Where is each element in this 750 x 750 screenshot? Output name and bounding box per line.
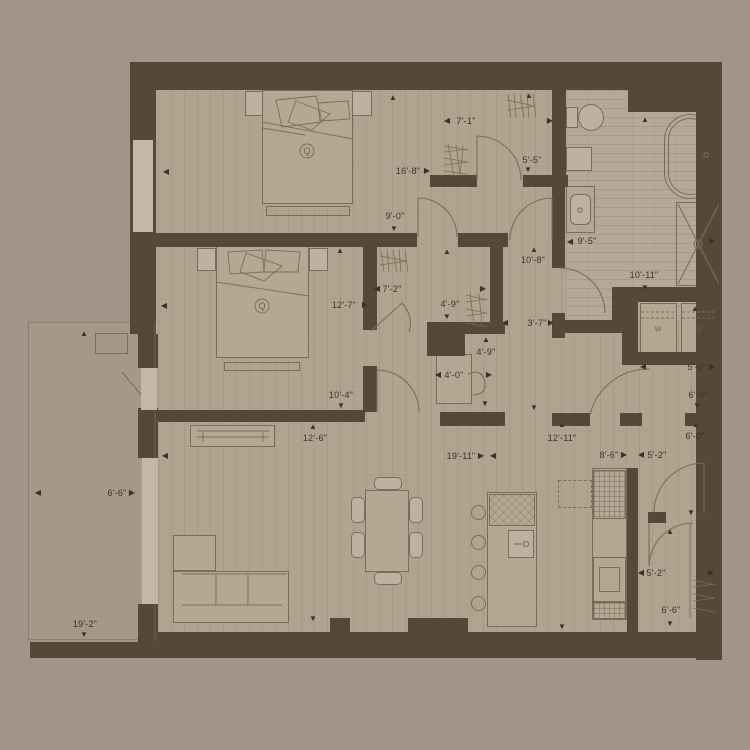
dimension-arrow-right: ▶: [424, 167, 430, 175]
bed2-size-label: Q: [258, 301, 265, 311]
dimension-label: 3'-7": [528, 318, 547, 328]
dimension-label: 12'-11": [548, 433, 577, 443]
dimension-arrow-right: ▶: [486, 371, 492, 379]
dimension-arrow-down: ▼: [693, 402, 701, 410]
dimension-arrow-up: ▲: [692, 421, 700, 429]
dimension-arrow-left: ◀: [35, 489, 41, 497]
dimension-label: 12'-6": [303, 433, 327, 443]
sofa-details: [182, 431, 287, 605]
fixture-details: [514, 153, 708, 547]
dimension-label: 10'-4": [329, 390, 353, 400]
dimension-arrow-down: ▼: [443, 313, 451, 321]
dimension-label: 5'-5": [523, 155, 542, 165]
dimension-label: 19'-11": [447, 451, 476, 461]
dimension-arrow-down: ▼: [641, 284, 649, 292]
dimension-arrow-right: ▶: [362, 301, 368, 309]
dimension-label: 16'-8": [396, 166, 420, 176]
dimension-label: 9'-5": [578, 236, 597, 246]
dimension-arrow-left: ◀: [163, 168, 169, 176]
dimension-label: 19'-2": [73, 619, 97, 629]
dimension-arrow-right: ▶: [548, 319, 554, 327]
balcony-door-opening: [141, 368, 157, 410]
dimension-label: 4'-9": [441, 299, 460, 309]
dimension-arrow-left: ◀: [435, 371, 441, 379]
dimension-arrow-up: ▲: [525, 92, 533, 100]
dimension-arrow-up: ▲: [482, 336, 490, 344]
dimension-label: 10'-8": [521, 255, 545, 265]
dimension-arrow-left: ◀: [162, 452, 168, 460]
dimension-label: 5'-2": [648, 450, 667, 460]
dimension-arrow-down: ▼: [666, 620, 674, 628]
floor-plan: Q Q W D 7'-1"◀▶5'-5"▲▼16'-8"◀▶9'-0"▲▼9'-…: [0, 0, 750, 750]
dimension-arrow-down: ▼: [687, 509, 695, 517]
dimension-arrow-up: ▲: [691, 305, 699, 313]
dimension-arrow-left: ◀: [490, 452, 496, 460]
plan-detail-overlay: [0, 0, 750, 750]
bed1-size-label: Q: [303, 146, 310, 156]
dimension-arrow-left: ◀: [444, 117, 450, 125]
dimension-arrow-up: ▲: [389, 94, 397, 102]
dimension-arrow-up: ▲: [336, 247, 344, 255]
dimension-arrow-down: ▼: [481, 400, 489, 408]
washer-label: W: [655, 327, 662, 334]
dimension-arrow-right: ▶: [478, 452, 484, 460]
dimension-arrow-left: ◀: [638, 451, 644, 459]
dimension-label: 7'-2": [383, 284, 402, 294]
dimension-label: 4'-0": [445, 370, 464, 380]
sliding-glass-door: [142, 458, 158, 604]
closet-clothes: [380, 93, 715, 612]
dimension-arrow-down: ▼: [80, 631, 88, 639]
door-arc: [122, 136, 704, 567]
dimension-arrow-up: ▲: [666, 528, 674, 536]
dimension-label: 5'-0": [688, 362, 707, 372]
dimension-arrow-right: ▶: [129, 489, 135, 497]
dimension-arrow-down: ▼: [530, 404, 538, 412]
dimension-arrow-left: ◀: [502, 319, 508, 327]
dimension-label: 4'-9": [477, 347, 496, 357]
dimension-arrow-down: ▼: [390, 225, 398, 233]
dimension-arrow-left: ◀: [374, 285, 380, 293]
dimension-label: 6'-9": [689, 390, 708, 400]
dimension-arrow-down: ▼: [524, 166, 532, 174]
dimension-arrow-right: ▶: [480, 285, 486, 293]
dimension-label: 6'-6": [108, 488, 127, 498]
dimension-arrow-left: ◀: [638, 569, 644, 577]
dimension-arrow-right: ▶: [547, 117, 553, 125]
dimension-arrow-right: ▶: [708, 569, 714, 577]
dimension-label: 9'-0": [386, 211, 405, 221]
dimension-label: 10'-11": [630, 270, 659, 280]
dimension-arrow-up: ▲: [558, 421, 566, 429]
laundry-dashes: [641, 312, 717, 318]
window: [133, 140, 153, 232]
dimension-arrow-left: ◀: [161, 302, 167, 310]
dimension-arrow-up: ▲: [530, 246, 538, 254]
dimension-arrow-right: ▶: [709, 237, 715, 245]
dimension-arrow-down: ▼: [558, 623, 566, 631]
dimension-label: 12'-7": [332, 300, 356, 310]
desk-chair: [468, 372, 485, 395]
dimension-arrow-up: ▲: [641, 116, 649, 124]
dimension-arrow-left: ◀: [640, 363, 646, 371]
dimension-arrow-right: ▶: [709, 363, 715, 371]
dimension-arrow-up: ▲: [80, 330, 88, 338]
dimension-arrow-right: ▶: [621, 451, 627, 459]
dimension-arrow-down: ▼: [337, 402, 345, 410]
dimension-arrow-down: ▼: [309, 615, 317, 623]
dimension-label: 6'-0": [686, 431, 705, 441]
dimension-label: 7'-1": [457, 116, 476, 126]
dimension-label: 5'-2": [647, 568, 666, 578]
dimension-label: 8'-6": [600, 450, 619, 460]
dimension-arrow-up: ▲: [443, 248, 451, 256]
dryer-label: D: [696, 327, 701, 334]
dimension-arrow-up: ▲: [309, 423, 317, 431]
dimension-label: 6'-6": [662, 605, 681, 615]
dimension-arrow-left: ◀: [567, 238, 573, 246]
